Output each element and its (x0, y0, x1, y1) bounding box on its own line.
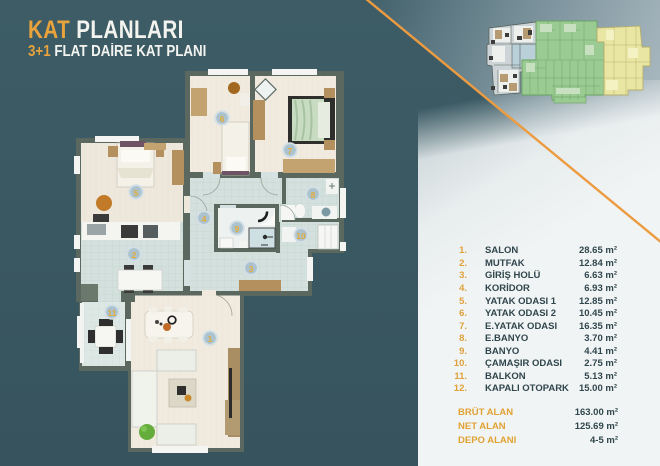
svg-text:8: 8 (311, 190, 316, 200)
svg-text:11: 11 (108, 308, 117, 318)
svg-text:5: 5 (134, 188, 139, 198)
svg-text:4: 4 (202, 214, 207, 224)
svg-text:7: 7 (288, 146, 293, 156)
svg-text:9: 9 (235, 224, 240, 234)
svg-text:10: 10 (296, 231, 306, 241)
svg-text:3: 3 (249, 264, 254, 274)
svg-text:2: 2 (132, 250, 137, 260)
svg-text:6: 6 (220, 114, 225, 124)
svg-text:1: 1 (208, 334, 213, 344)
